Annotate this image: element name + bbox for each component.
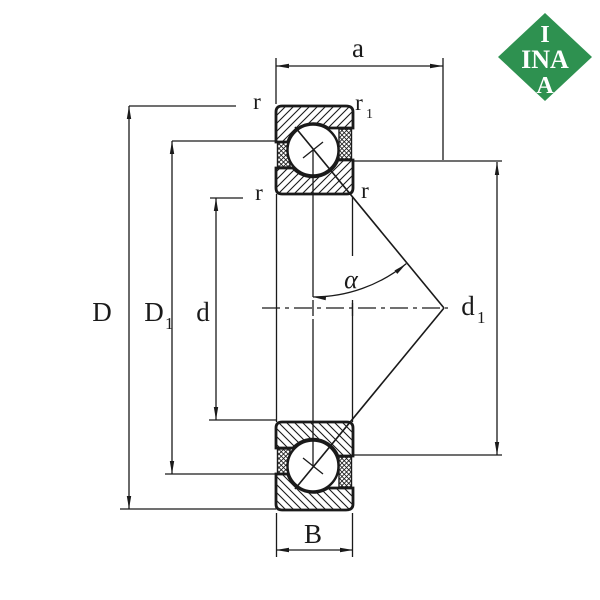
label-r-mid-right: r bbox=[361, 178, 369, 203]
B-arrow-left bbox=[276, 548, 289, 552]
label-r-mid-left: r bbox=[255, 180, 263, 205]
d1-arrow-top bbox=[495, 162, 499, 175]
alpha-arrow-right bbox=[395, 264, 407, 274]
d1-arrow-bottom bbox=[495, 442, 499, 455]
label-d: d bbox=[196, 297, 210, 327]
label-d1-sub: 1 bbox=[477, 308, 486, 327]
label-D: D bbox=[92, 297, 112, 327]
alpha-angle-arc bbox=[313, 264, 406, 297]
label-a: a bbox=[352, 33, 364, 63]
label-d1-base: d bbox=[461, 291, 475, 321]
label-r-top-left: r bbox=[253, 89, 261, 114]
D-arrow-top bbox=[127, 106, 131, 119]
D1-arrow-bottom bbox=[170, 461, 174, 474]
a-arrow-right bbox=[430, 64, 443, 68]
label-B: B bbox=[304, 519, 322, 549]
a-arrow-left bbox=[276, 64, 289, 68]
d-arrow-bottom bbox=[214, 407, 218, 420]
label-r1-base: r bbox=[355, 90, 363, 115]
label-D1-sub: 1 bbox=[165, 314, 174, 333]
bearing-drawing-svg: a D D 1 d d 1 B α r r 1 r r I INA A bbox=[0, 0, 600, 600]
bearing-diagram: a D D 1 d d 1 B α r r 1 r r I INA A bbox=[0, 0, 600, 600]
ina-logo: I INA A bbox=[498, 13, 592, 101]
ina-logo-row3: A bbox=[536, 73, 554, 99]
B-arrow-right bbox=[340, 548, 353, 552]
bearing-bottom-section bbox=[276, 308, 444, 510]
cage-right bbox=[339, 129, 352, 159]
ina-logo-row2: INA bbox=[521, 45, 569, 74]
label-alpha: α bbox=[344, 265, 359, 294]
label-r1-sub: 1 bbox=[366, 107, 373, 122]
D1-arrow-top bbox=[170, 141, 174, 154]
bearing-top-section bbox=[276, 106, 444, 308]
D-arrow-bottom bbox=[127, 496, 131, 509]
d-arrow-top bbox=[214, 198, 218, 211]
label-D1-base: D bbox=[144, 297, 164, 327]
contact-line bbox=[295, 127, 444, 308]
